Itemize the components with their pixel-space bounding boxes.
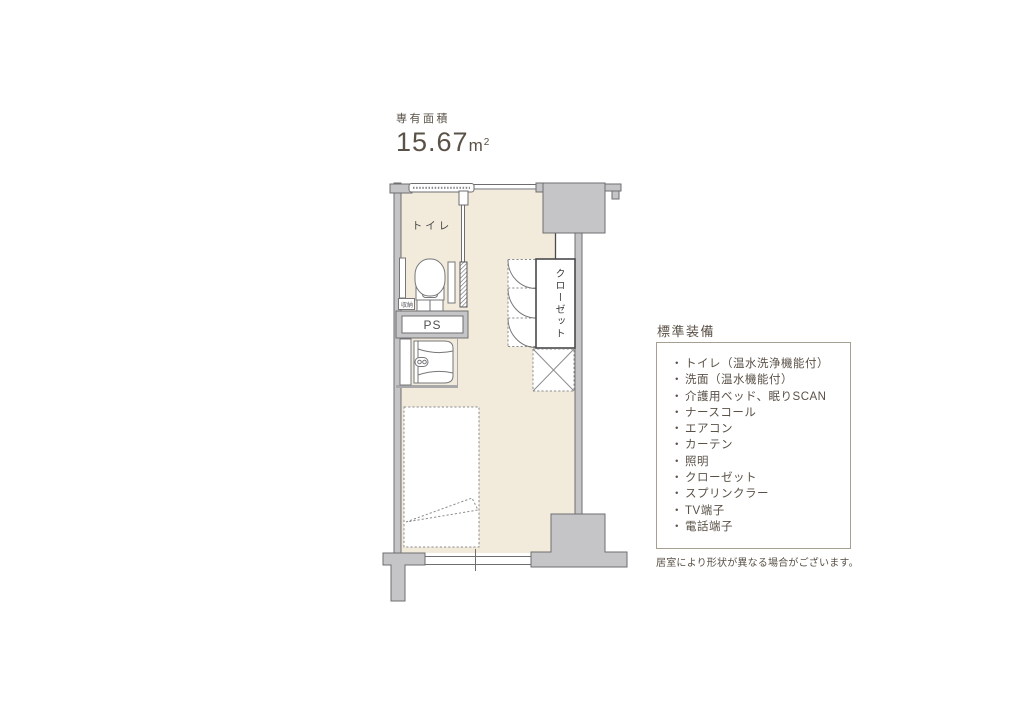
equipment-item-bullet: ・ bbox=[671, 488, 683, 500]
area-unit: m bbox=[469, 136, 484, 155]
equipment-item: ・照明 bbox=[671, 454, 842, 470]
area-unit-sup: 2 bbox=[484, 137, 491, 148]
equipment-item-bullet: ・ bbox=[671, 521, 683, 533]
equipment-item-bullet: ・ bbox=[671, 374, 683, 386]
toilet-sliding-door bbox=[460, 262, 467, 307]
equipment-item-bullet: ・ bbox=[671, 505, 683, 517]
equipment-list: ・トイレ（温水洗浄機能付） ・洗面（温水機能付） ・介護用ベッド、眠りSCAN … bbox=[657, 343, 850, 535]
equipment-item-bullet: ・ bbox=[671, 391, 683, 403]
equipment-heading: 標準装備 bbox=[657, 321, 715, 340]
ps-label: PS bbox=[402, 318, 463, 332]
partition-head bbox=[459, 191, 468, 205]
equipment-item: ・エアコン bbox=[671, 421, 842, 437]
equipment-item: ・介護用ベッド、眠りSCAN bbox=[671, 389, 842, 405]
exclusive-area-value: 15.67m2 bbox=[396, 129, 490, 156]
equipment-item-label: 洗面（温水機能付） bbox=[685, 374, 793, 386]
equipment-item: ・電話端子 bbox=[671, 519, 842, 535]
equipment-item-bullet: ・ bbox=[671, 423, 683, 435]
floor-plan-svg bbox=[375, 178, 637, 608]
right-wall bbox=[575, 233, 582, 514]
partition-line bbox=[462, 205, 465, 262]
care-bed bbox=[404, 407, 479, 547]
floor-right-lower bbox=[543, 515, 551, 553]
equipment-item-label: ナースコール bbox=[685, 407, 756, 419]
equipment-item: ・洗面（温水機能付） bbox=[671, 372, 842, 388]
bed-outline bbox=[404, 407, 479, 547]
toilet-handrail-right bbox=[448, 262, 455, 303]
exclusive-area-caption: 専有面積 bbox=[396, 110, 490, 126]
wall-recess-above-closet bbox=[556, 234, 576, 260]
equipment-item-bullet: ・ bbox=[671, 456, 683, 468]
toilet-bowl bbox=[415, 259, 445, 296]
equipment-item: ・TV端子 bbox=[671, 503, 842, 519]
equipment-item-label: クローゼット bbox=[685, 472, 757, 484]
toilet-handrail-left bbox=[400, 258, 406, 298]
closet-label: クローゼット bbox=[545, 263, 566, 345]
equipment-item-label: TV端子 bbox=[685, 505, 725, 517]
equipment-box: ・トイレ（温水洗浄機能付） ・洗面（温水機能付） ・介護用ベッド、眠りSCAN … bbox=[656, 342, 851, 549]
exclusive-area-label: 専有面積 15.67m2 bbox=[396, 110, 490, 156]
area-number: 15.67 bbox=[396, 127, 469, 157]
x-marked-shaft bbox=[533, 349, 574, 391]
top-right-wall-bar bbox=[605, 184, 621, 191]
equipment-item: ・カーテン bbox=[671, 437, 842, 453]
equipment-item-label: カーテン bbox=[685, 439, 733, 451]
equipment-item-bullet: ・ bbox=[671, 439, 683, 451]
floor-plan-page: 専有面積 15.67m2 bbox=[0, 0, 1024, 724]
equipment-item-label: スプリンクラー bbox=[685, 488, 769, 500]
equipment-item: ・クローゼット bbox=[671, 470, 842, 486]
equipment-item-bullet: ・ bbox=[671, 407, 683, 419]
equipment-item: ・スプリンクラー bbox=[671, 486, 842, 502]
top-right-pillar bbox=[543, 183, 605, 233]
equipment-item: ・トイレ（温水洗浄機能付） bbox=[671, 356, 842, 372]
washbasin-cabinet bbox=[400, 339, 411, 385]
equipment-item-bullet: ・ bbox=[671, 358, 683, 370]
top-wall bbox=[474, 185, 537, 190]
storage-label: 収納 bbox=[399, 300, 415, 309]
equipment-item: ・ナースコール bbox=[671, 405, 842, 421]
equipment-item-label: 介護用ベッド、眠りSCAN bbox=[685, 391, 827, 403]
washbasin-alcove bbox=[396, 338, 458, 388]
equipment-item-label: 照明 bbox=[685, 456, 709, 468]
top-right-wall-tab bbox=[612, 191, 619, 199]
equipment-item-bullet: ・ bbox=[671, 472, 683, 484]
equipment-item-label: 電話端子 bbox=[685, 521, 733, 533]
equipment-note: 居室により形状が異なる場合がございます。 bbox=[656, 554, 866, 569]
bottom-left-wall bbox=[383, 553, 425, 601]
equipment-item-label: トイレ（温水洗浄機能付） bbox=[685, 358, 829, 370]
toilet-room-label: トイレ bbox=[402, 218, 462, 233]
equipment-item-label: エアコン bbox=[685, 423, 733, 435]
